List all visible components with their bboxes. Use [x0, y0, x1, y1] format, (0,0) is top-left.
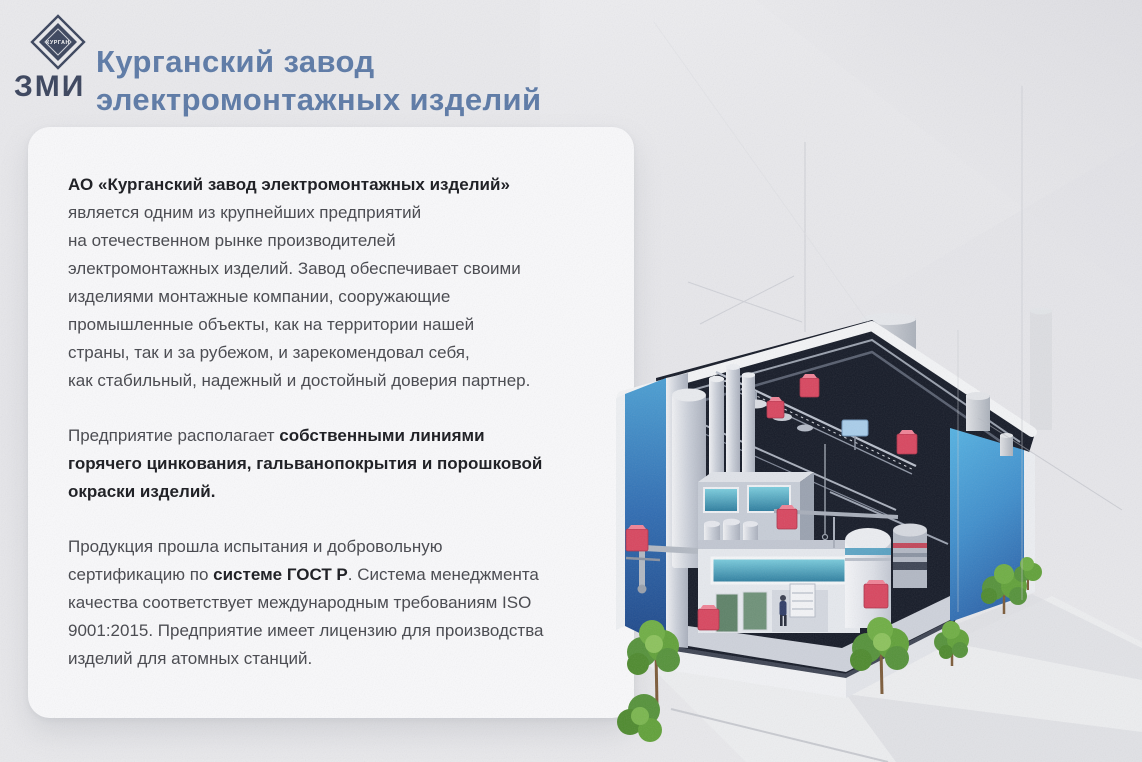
card-paragraph: Продукция прошла испытания и добровольну…: [68, 533, 608, 673]
page-title: Курганский завод электромонтажных издели…: [96, 43, 716, 119]
red-marker: [864, 580, 888, 608]
slide: КУРГАН ЗМИ Курганский завод электромонта…: [0, 0, 1142, 762]
background-shading-top-right: [712, 0, 1142, 300]
red-marker: [800, 374, 819, 397]
background-tower: [1030, 308, 1052, 431]
red-marker: [777, 505, 797, 529]
brand-header: КУРГАН ЗМИ Курганский завод электромонта…: [12, 14, 92, 100]
production-hall: [698, 540, 860, 633]
company-logo: КУРГАН ЗМИ: [12, 14, 92, 100]
card-paragraphs: АО «Курганский завод электромонтажных из…: [28, 127, 634, 673]
factory-illustration: [596, 296, 1142, 762]
red-marker: [698, 605, 719, 630]
description-card: АО «Курганский завод электромонтажных из…: [28, 127, 634, 718]
red-marker: [897, 430, 917, 454]
logo-bottom-text: ЗМИ: [14, 70, 85, 100]
card-paragraph: АО «Курганский завод электромонтажных из…: [68, 171, 608, 395]
logo-band-text: КУРГАН: [46, 40, 70, 46]
red-marker: [626, 525, 648, 551]
card-paragraph: Предприятие располагает собственными лин…: [68, 422, 608, 506]
